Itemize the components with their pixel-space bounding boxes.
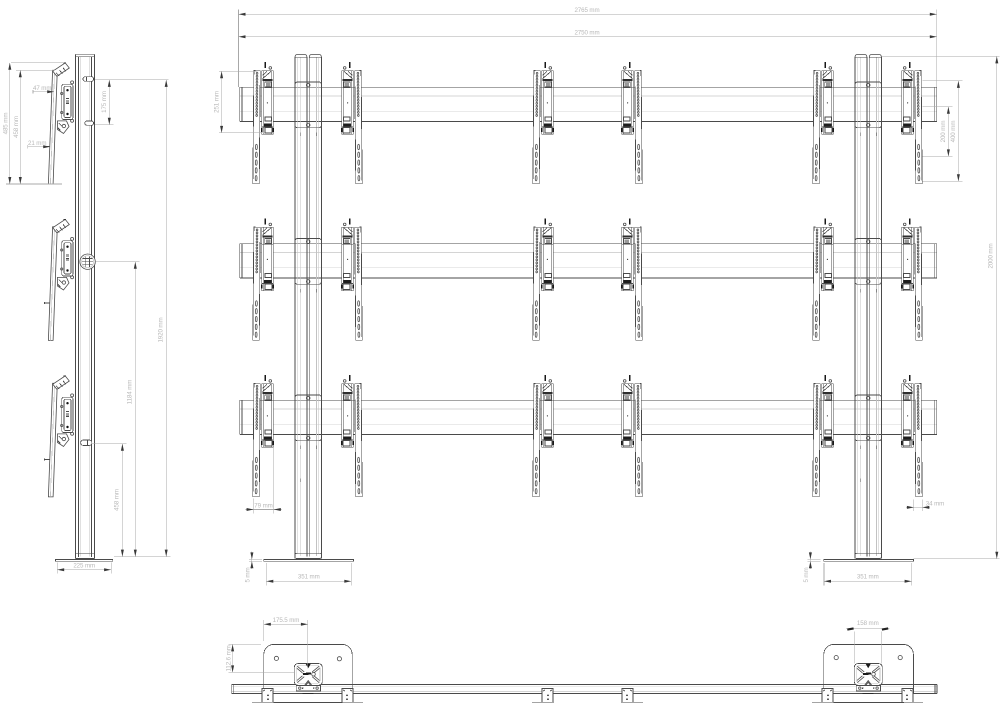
- svg-text:458 mm: 458 mm: [13, 116, 20, 138]
- svg-text:200 mm: 200 mm: [940, 121, 947, 143]
- svg-text:400 mm: 400 mm: [950, 121, 957, 143]
- svg-text:2000 mm: 2000 mm: [988, 243, 995, 268]
- svg-text:351 mm: 351 mm: [857, 574, 879, 581]
- svg-text:2750 mm: 2750 mm: [574, 29, 599, 36]
- svg-text:251 mm: 251 mm: [213, 91, 220, 113]
- svg-text:2765 mm: 2765 mm: [574, 7, 599, 14]
- svg-text:1920 mm: 1920 mm: [157, 317, 164, 342]
- svg-text:1184 mm: 1184 mm: [127, 380, 134, 405]
- svg-text:485 mm: 485 mm: [2, 113, 9, 135]
- svg-text:79 mm: 79 mm: [254, 502, 272, 509]
- svg-text:458 mm: 458 mm: [114, 489, 121, 511]
- svg-text:351 mm: 351 mm: [298, 574, 320, 581]
- svg-text:112.6 mm: 112.6 mm: [225, 645, 232, 671]
- svg-text:175.5 mm: 175.5 mm: [273, 617, 300, 624]
- svg-text:225 mm: 225 mm: [73, 563, 95, 570]
- svg-text:5 mm: 5 mm: [803, 567, 810, 582]
- svg-text:5 mm: 5 mm: [245, 567, 252, 582]
- svg-text:158 mm: 158 mm: [857, 620, 879, 627]
- svg-text:175 mm: 175 mm: [101, 91, 108, 113]
- svg-text:34 mm: 34 mm: [926, 500, 944, 507]
